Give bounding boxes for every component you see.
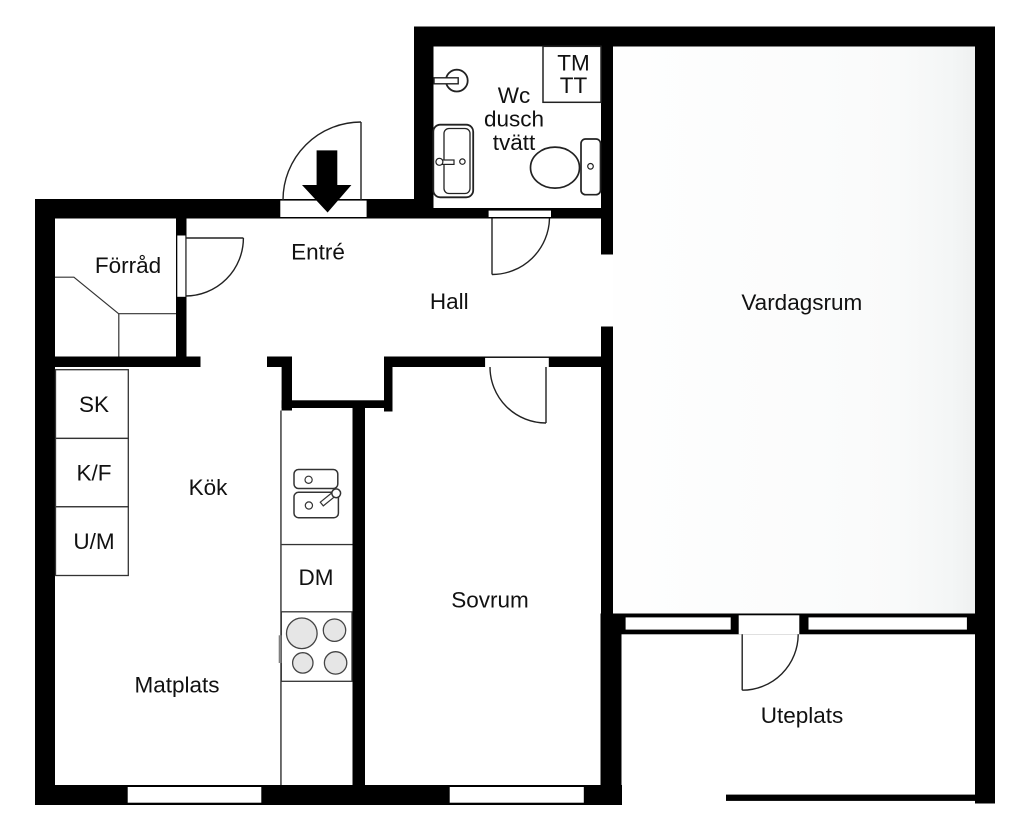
svg-text:Vardagsrum: Vardagsrum xyxy=(741,290,862,315)
svg-text:tvätt: tvätt xyxy=(493,130,536,155)
svg-text:Wc: Wc xyxy=(498,83,531,108)
svg-text:dusch: dusch xyxy=(484,107,544,132)
svg-text:Entré: Entré xyxy=(291,240,345,265)
svg-text:SK: SK xyxy=(79,392,109,417)
svg-text:TT: TT xyxy=(560,73,588,98)
svg-text:TM: TM xyxy=(557,51,590,76)
svg-text:Kök: Kök xyxy=(189,475,229,500)
svg-text:Matplats: Matplats xyxy=(134,673,219,698)
svg-text:Förråd: Förråd xyxy=(95,253,161,278)
svg-text:Uteplats: Uteplats xyxy=(761,703,844,728)
svg-text:U/M: U/M xyxy=(73,529,114,554)
svg-text:Sovrum: Sovrum xyxy=(451,587,529,612)
svg-text:DM: DM xyxy=(299,565,334,590)
svg-text:K/F: K/F xyxy=(76,461,111,486)
svg-text:Hall: Hall xyxy=(430,289,469,314)
